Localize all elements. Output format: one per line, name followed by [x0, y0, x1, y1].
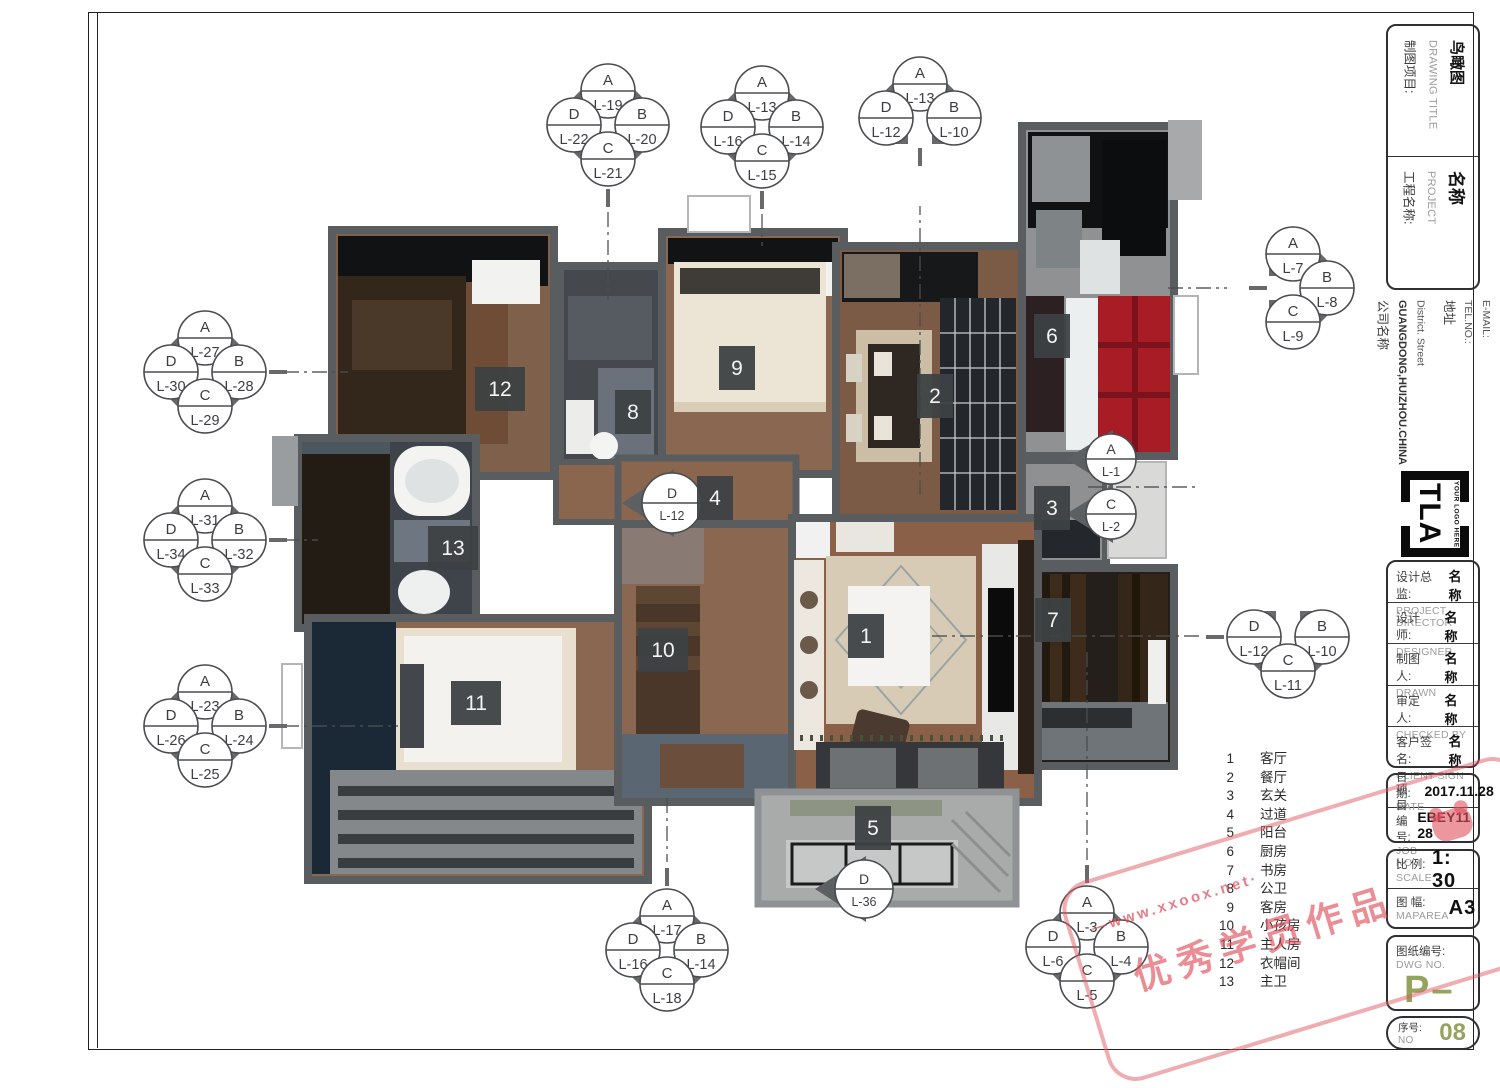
svg-text:B: B [234, 707, 244, 724]
svg-text:A: A [662, 897, 672, 914]
signature-row: 制图人:名称DRAWN [1388, 644, 1478, 685]
logo-text: TLA [1411, 483, 1449, 544]
svg-text:4: 4 [709, 487, 721, 510]
svg-text:L-12: L-12 [659, 509, 684, 523]
serial-label-cn: 序号: [1398, 1020, 1422, 1035]
svg-text:C: C [603, 140, 614, 157]
svg-text:L-6: L-6 [1043, 954, 1064, 970]
maparea-value: A3 [1449, 897, 1477, 920]
svg-text:B: B [637, 106, 647, 123]
elevation-marker: AL-13DL-16BL-14CL-15 [700, 65, 824, 209]
svg-text:3: 3 [1046, 497, 1058, 520]
svg-text:D: D [166, 707, 177, 724]
room-number-badge: 10 [638, 628, 688, 672]
maparea-row: 图 幅: MAPAREA A3 [1388, 889, 1478, 927]
company-name: GUANGDONG,HUIZHOU.CHINA [1394, 300, 1408, 465]
logo-tagline: YOUR LOGO HERE [1451, 481, 1459, 548]
room-number-badge: 2 [917, 374, 953, 418]
elevation-marker: AL-17DL-16BL-14CL-18 [605, 868, 729, 1012]
svg-text:2: 2 [929, 385, 941, 408]
drawing-title-section: 制图项目: DRAWING TITLE 鸟瞰图 [1388, 26, 1478, 157]
svg-text:D: D [628, 931, 639, 948]
svg-text:B: B [949, 99, 959, 116]
room-number-badge: 6 [1034, 314, 1070, 358]
svg-text:L-21: L-21 [593, 166, 622, 182]
svg-text:13: 13 [441, 537, 464, 560]
svg-text:L-7: L-7 [1283, 261, 1304, 277]
dwg-no-label-cn: 图纸编号: [1396, 943, 1478, 959]
svg-text:A: A [757, 74, 767, 91]
job-no-value: EBEY11 28 [1417, 809, 1470, 841]
svg-text:L-25: L-25 [190, 767, 219, 783]
legend-row: 9客房 [1212, 899, 1301, 918]
project-value: 名称 [1445, 171, 1466, 205]
svg-text:L-33: L-33 [190, 581, 219, 597]
svg-text:A: A [915, 65, 925, 82]
scale-box: 比 例: SCALE 1: 30 图 幅: MAPAREA A3 [1386, 849, 1480, 929]
svg-text:D: D [859, 871, 869, 887]
svg-text:L-36: L-36 [851, 895, 876, 909]
room-number-badge: 1 [848, 614, 884, 658]
job-no-label-cn: 项目编号: [1396, 781, 1417, 845]
svg-text:10: 10 [651, 639, 674, 662]
address-label-cn: 地址 [1440, 300, 1456, 325]
serial-no-box: 序号: NO 08 [1386, 1016, 1480, 1050]
tel-label: TEL.NO.: [1461, 300, 1474, 344]
elevation-marker: AL-31DL-34BL-32CL-33 [143, 478, 287, 602]
svg-text:C: C [200, 555, 211, 572]
signature-row: 设计师:名称DESIGNER [1388, 603, 1478, 644]
svg-text:C: C [1283, 652, 1294, 669]
svg-text:C: C [662, 965, 673, 982]
svg-text:A: A [1106, 441, 1116, 457]
dwg-no-box: 图纸编号: DWG NO. P– [1386, 935, 1480, 1011]
legend-row: 1客厅 [1212, 750, 1301, 769]
room-public-bath-8 [560, 266, 662, 466]
svg-text:5: 5 [867, 817, 879, 840]
room-number-badge: 7 [1035, 598, 1071, 642]
room-number-badge: 3 [1034, 486, 1070, 530]
svg-text:L-4: L-4 [1111, 954, 1132, 970]
signature-row: 设计总监:名称PROJECT DIRECTOR [1388, 562, 1478, 603]
svg-text:D: D [667, 485, 677, 501]
svg-text:L-15: L-15 [747, 168, 776, 184]
svg-text:B: B [791, 108, 801, 125]
room-number-badge: 5 [855, 806, 891, 850]
room-number-badge: 4 [697, 476, 733, 520]
legend-row: 4过道 [1212, 806, 1301, 825]
svg-text:C: C [757, 142, 768, 159]
project-section: 工程名称: PROJECT 名称 [1388, 157, 1478, 224]
elevation-marker: AL-23DL-26BL-24CL-25 [143, 664, 287, 788]
svg-text:A: A [1082, 894, 1092, 911]
svg-text:D: D [723, 108, 734, 125]
company-logo: TLA YOUR LOGO HERE [1396, 470, 1474, 558]
maparea-label-en: MAPAREA [1396, 910, 1449, 922]
elevation-marker: DL-12BL-10CL-11 [1206, 571, 1354, 699]
elevation-marker: AL-19DL-22BL-20CL-21 [546, 63, 670, 207]
svg-text:1: 1 [860, 625, 872, 648]
svg-text:C: C [1288, 303, 1299, 320]
svg-text:D: D [881, 99, 892, 116]
svg-text:B: B [1317, 618, 1327, 635]
company-label-cn: 公司名称 [1374, 300, 1390, 350]
company-address-line: District. Street [1413, 300, 1426, 366]
legend-row: 3玄关 [1212, 787, 1301, 806]
project-label-en: PROJECT [1423, 171, 1437, 224]
svg-text:11: 11 [465, 692, 487, 715]
room-number-badge: 12 [475, 367, 525, 411]
svg-text:C: C [1106, 496, 1116, 512]
job-no-row: 项目编号: JOB NO EBEY11 28 [1388, 808, 1478, 841]
svg-text:A: A [1288, 235, 1298, 252]
svg-text:12: 12 [488, 378, 511, 401]
scale-label-en: SCALE [1396, 872, 1432, 884]
date-value: 2017.11.28 [1424, 783, 1493, 799]
legend-row: 8公卫 [1212, 880, 1301, 899]
svg-text:C: C [200, 387, 211, 404]
svg-text:8: 8 [627, 401, 639, 424]
signature-row: 审定人:名称CHECKED BY [1388, 686, 1478, 727]
svg-text:L-12: L-12 [871, 125, 900, 141]
svg-text:L-3: L-3 [1077, 920, 1098, 936]
maparea-label-cn: 图 幅: [1396, 894, 1449, 910]
elevation-marker: AL-7BL-8CL-9 [1227, 222, 1355, 354]
svg-text:L-2: L-2 [1102, 520, 1120, 534]
room-master-bedroom-11 [308, 618, 648, 880]
svg-text:A: A [603, 72, 613, 89]
dwg-no-value: P– [1388, 969, 1478, 1012]
svg-text:A: A [200, 319, 210, 336]
svg-text:B: B [1116, 928, 1126, 945]
svg-text:L-29: L-29 [190, 413, 219, 429]
svg-text:L-11: L-11 [1274, 678, 1302, 694]
svg-text:D: D [569, 106, 580, 123]
room-living-1 [792, 518, 1038, 802]
legend-row: 13主卫 [1212, 973, 1301, 992]
drawing-title-value: 鸟瞰图 [1446, 40, 1465, 85]
room-kitchen-6 [1022, 126, 1174, 456]
elevation-marker: AL-27DL-30BL-28CL-29 [143, 310, 287, 434]
room-number-badge: 8 [615, 390, 651, 434]
svg-text:B: B [234, 521, 244, 538]
svg-text:L-9: L-9 [1283, 329, 1304, 345]
scale-label-cn: 比 例: [1396, 856, 1432, 872]
elevation-marker: AL-3DL-6BL-4CL-5 [1025, 865, 1149, 1009]
legend-row: 2餐厅 [1212, 769, 1301, 788]
svg-text:6: 6 [1046, 325, 1058, 348]
svg-text:D: D [166, 353, 177, 370]
svg-text:B: B [234, 353, 244, 370]
legend-row: 7书房 [1212, 862, 1301, 881]
drawing-title-label-cn: 制图项目: [1401, 40, 1417, 93]
drawing-title-label-en: DRAWING TITLE [1425, 40, 1439, 129]
room-study-7 [1022, 568, 1174, 766]
svg-text:D: D [1048, 928, 1059, 945]
company-info: 公司名称 GUANGDONG,HUIZHOU.CHINA District. S… [1386, 300, 1480, 468]
svg-text:A: A [200, 673, 210, 690]
svg-text:L-8: L-8 [1317, 295, 1338, 311]
serial-label-en: NO [1398, 1035, 1422, 1046]
date-box: 日 期: DATE 2017.11.28 项目编号: JOB NO EBEY11… [1386, 773, 1480, 843]
svg-text:B: B [1322, 269, 1332, 286]
drawing-title-box: 制图项目: DRAWING TITLE 鸟瞰图 工程名称: PROJECT 名称 [1386, 24, 1480, 290]
email-label: E-MAIL: [1479, 300, 1492, 338]
legend-row: 6厨房 [1212, 843, 1301, 862]
svg-text:L-5: L-5 [1077, 988, 1098, 1004]
serial-value: 08 [1439, 1019, 1466, 1047]
scale-row: 比 例: SCALE 1: 30 [1388, 851, 1478, 889]
legend-row: 12衣帽间 [1212, 955, 1301, 974]
signature-row: 客户签名:名称CLIENT SIGN [1388, 727, 1478, 768]
svg-text:A: A [200, 487, 210, 504]
svg-text:7: 7 [1047, 609, 1059, 632]
elevation-marker: AL-13DL-12BL-10 [854, 56, 986, 206]
room-number-badge: 9 [719, 346, 755, 390]
svg-text:L-10: L-10 [939, 125, 968, 141]
svg-text:C: C [200, 741, 211, 758]
svg-text:D: D [1249, 618, 1260, 635]
svg-text:D: D [166, 521, 177, 538]
svg-text:9: 9 [731, 357, 743, 380]
legend-row: 11主人房 [1212, 936, 1301, 955]
room-legend: 1客厅2餐厅3玄关4过道5阳台6厨房7书房8公卫9客房10小孩房11主人房12衣… [1212, 750, 1301, 992]
legend-row: 5阳台 [1212, 824, 1301, 843]
scale-value: 1: 30 [1432, 847, 1470, 893]
svg-text:L-1: L-1 [1102, 465, 1120, 479]
legend-row: 10小孩房 [1212, 917, 1301, 936]
svg-text:B: B [696, 931, 706, 948]
room-number-badge: 13 [428, 526, 478, 570]
signature-box: 设计总监:名称PROJECT DIRECTOR设计师:名称DESIGNER制图人… [1386, 560, 1480, 768]
svg-text:L-18: L-18 [652, 991, 681, 1007]
project-label-cn: 工程名称: [1400, 171, 1416, 224]
room-number-badge: 11 [451, 681, 501, 725]
svg-text:C: C [1082, 962, 1093, 979]
